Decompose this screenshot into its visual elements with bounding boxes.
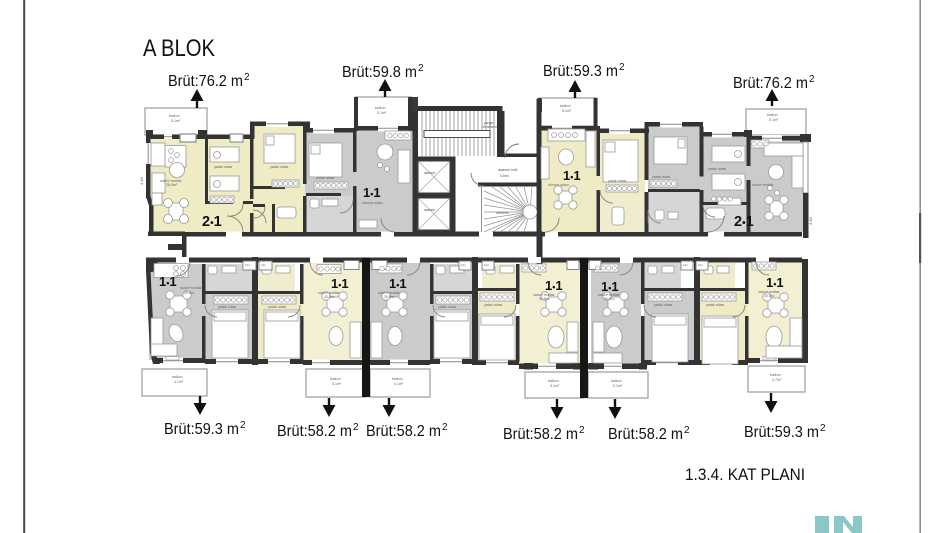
svg-text:salon+mutfak: salon+mutfak [752,183,774,187]
svg-text:2: 2 [619,62,625,73]
svg-text:4.7m²: 4.7m² [174,380,184,384]
svg-text:yatak odası: yatak odası [654,303,672,307]
svg-text:2: 2 [442,422,448,433]
svg-text:2: 2 [418,63,424,74]
svg-text:asansör: asansör [424,171,436,175]
svg-text:4.7m²: 4.7m² [772,378,782,382]
svg-text:balkon: balkon [767,113,778,117]
svg-text:yatak odası: yatak odası [270,165,288,169]
svg-text:2: 2 [684,425,690,436]
svg-text:yatak odası: yatak odası [706,303,724,307]
svg-text:asansör: asansör [424,208,436,212]
svg-text:5.1m²: 5.1m² [562,109,572,113]
svg-text:2: 2 [579,425,585,436]
svg-text:Brüt:58.2 m: Brüt:58.2 m [366,423,441,440]
svg-text:balkon: balkon [560,104,571,108]
svg-text:balkon: balkon [330,377,341,381]
svg-text:yatak odası: yatak odası [708,167,726,171]
svg-text:balkon: balkon [392,377,403,381]
svg-text:5.1m²: 5.1m² [377,111,387,115]
svg-text:Brüt:76.2 m: Brüt:76.2 m [733,75,808,92]
svg-text:oturma odası: oturma odası [548,183,569,187]
svg-text:2: 2 [353,422,359,433]
svg-text:Brüt:59.3 m: Brüt:59.3 m [164,421,239,438]
svg-text:2: 2 [820,423,826,434]
svg-text:Brüt:59.3 m: Brüt:59.3 m [744,424,819,441]
svg-text:oturma odası: oturma odası [362,201,383,205]
svg-text:5.1m²: 5.1m² [613,384,623,388]
svg-text:balkon: balkon [375,106,386,110]
svg-text:kiler: kiler [484,263,489,267]
svg-text:yatak odası: yatak odası [484,303,502,307]
svg-text:30.5m²: 30.5m² [384,295,395,299]
svg-text:5.1m²: 5.1m² [394,382,404,386]
svg-text:30.5m²: 30.5m² [604,297,615,301]
svg-text:kiler: kiler [683,263,688,267]
svg-text:balkon: balkon [548,379,559,383]
svg-text:salon+mutfak: salon+mutfak [180,286,202,290]
svg-text:1.3.4. KAT PLANI: 1.3.4. KAT PLANI [685,466,805,484]
svg-text:Brüt:59.3 m: Brüt:59.3 m [543,63,618,80]
svg-text:merdiveni: merdiveni [482,125,497,129]
svg-text:6.5m²: 6.5m² [500,174,510,178]
svg-text:4.49: 4.49 [139,176,144,185]
svg-text:asansör holü: asansör holü [498,168,518,172]
svg-text:5.1m²: 5.1m² [171,119,181,123]
svg-text:yatak odası: yatak odası [214,165,232,169]
svg-text:kiler: kiler [461,263,466,267]
svg-text:30.5m²: 30.5m² [539,297,550,301]
svg-text:Brüt:59.8 m: Brüt:59.8 m [342,64,417,81]
svg-text:balkon: balkon [770,373,781,377]
svg-text:yatak odası: yatak odası [652,175,670,179]
svg-text:28.5m²: 28.5m² [166,183,178,187]
svg-text:2: 2 [809,74,815,85]
svg-text:Brüt:58.2 m: Brüt:58.2 m [503,426,578,443]
svg-text:balkon: balkon [172,375,183,379]
svg-text:Brüt:58.2 m: Brüt:58.2 m [277,423,352,440]
svg-text:balkon: balkon [169,114,180,118]
svg-text:2: 2 [240,420,246,431]
svg-text:5.1m²: 5.1m² [332,382,342,386]
svg-text:Brüt:76.2 m: Brüt:76.2 m [168,73,243,90]
svg-text:yatak odası: yatak odası [608,179,626,183]
svg-text:kiler: kiler [261,263,266,267]
svg-text:5.1m²: 5.1m² [769,118,779,122]
svg-text:yatak odası: yatak odası [268,305,286,309]
svg-text:kiler: kiler [698,263,703,267]
svg-text:Brüt:58.2 m: Brüt:58.2 m [608,426,683,443]
svg-text:merdiven: merdiven [496,211,509,215]
svg-text:30.5m²: 30.5m² [324,295,335,299]
svg-text:balkon: balkon [611,379,622,383]
svg-text:30.5m²: 30.5m² [184,291,195,295]
svg-text:30.5m²: 30.5m² [764,294,775,298]
svg-text:yatak odası: yatak odası [316,176,334,180]
svg-text:4.49: 4.49 [808,216,813,225]
svg-text:yatak odası: yatak odası [218,305,236,309]
svg-text:5.1m²: 5.1m² [550,384,560,388]
svg-text:A BLOK: A BLOK [143,35,215,62]
svg-text:kiler: kiler [245,263,250,267]
svg-text:yatak odası: yatak odası [438,305,456,309]
svg-text:2: 2 [244,72,250,83]
